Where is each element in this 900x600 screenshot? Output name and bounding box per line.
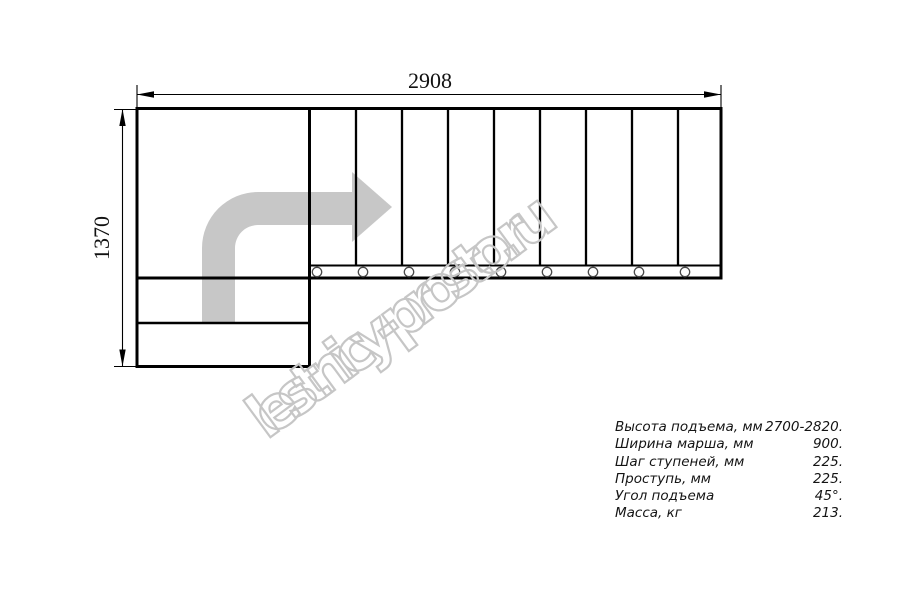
- spec-value: 213.: [813, 505, 843, 522]
- tread-joint-circle: [312, 267, 321, 276]
- width-dimension: 2908: [137, 68, 721, 107]
- tread-joint-circle: [450, 267, 459, 276]
- spec-row: Высота подъема, мм 2700-2820.: [615, 419, 843, 436]
- spec-label: Проступь, мм: [615, 471, 711, 488]
- spec-row: Масса, кг 213.: [615, 505, 843, 522]
- stair-drawing-page: 2908 1370 lestnicy-prosto.ru Высота подъ…: [0, 0, 900, 600]
- tread-circles: [312, 267, 689, 276]
- direction-arrow-head: [352, 172, 392, 242]
- spec-label: Ширина марша, мм: [615, 436, 754, 453]
- tread-joint-circle: [496, 267, 505, 276]
- spec-value: 2700-2820.: [765, 419, 843, 436]
- width-dim-label: 2908: [408, 68, 452, 93]
- spec-value: 45°.: [815, 488, 843, 505]
- tread-lines: [356, 108, 678, 266]
- tread-joint-circle: [588, 267, 597, 276]
- spec-row: Проступь, мм 225.: [615, 471, 843, 488]
- spec-row: Угол подъема 45°.: [615, 488, 843, 505]
- tread-joint-circle: [634, 267, 643, 276]
- tread-joint-circle: [404, 267, 413, 276]
- spec-label: Высота подъема, мм: [615, 419, 763, 436]
- height-dim-label: 1370: [89, 216, 114, 260]
- spec-label: Масса, кг: [615, 505, 682, 522]
- spec-label: Угол подъема: [615, 488, 714, 505]
- spec-row: Шаг ступеней, мм 225.: [615, 454, 843, 471]
- spec-table: Высота подъема, мм 2700-2820. Ширина мар…: [615, 419, 843, 523]
- spec-row: Ширина марша, мм 900.: [615, 436, 843, 453]
- tread-joint-circle: [680, 267, 689, 276]
- spec-label: Шаг ступеней, мм: [615, 454, 744, 471]
- tread-joint-circle: [358, 267, 367, 276]
- direction-arrow-shaft: [202, 192, 352, 323]
- height-dimension: 1370: [89, 109, 136, 367]
- height-dim-arrow-bottom: [119, 350, 125, 367]
- height-dim-arrow-top: [119, 109, 125, 126]
- spec-value: 225.: [813, 454, 843, 471]
- width-dim-arrow-right: [704, 91, 721, 97]
- spec-value: 225.: [813, 471, 843, 488]
- direction-arrow: [202, 172, 392, 323]
- tread-joint-circle: [542, 267, 551, 276]
- spec-value: 900.: [813, 436, 843, 453]
- width-dim-arrow-left: [137, 91, 154, 97]
